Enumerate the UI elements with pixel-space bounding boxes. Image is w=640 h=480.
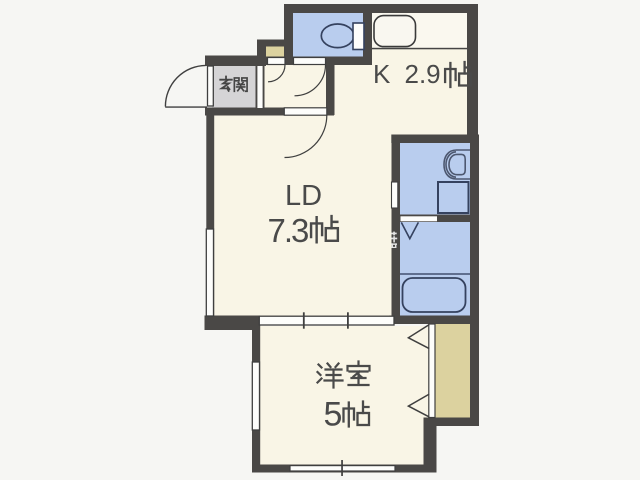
svg-text:7.3: 7.3: [268, 212, 309, 249]
svg-text:K: K: [373, 59, 391, 89]
svg-text:5: 5: [324, 396, 343, 434]
svg-text:2.9: 2.9: [405, 59, 441, 89]
svg-text:LD: LD: [285, 180, 322, 212]
